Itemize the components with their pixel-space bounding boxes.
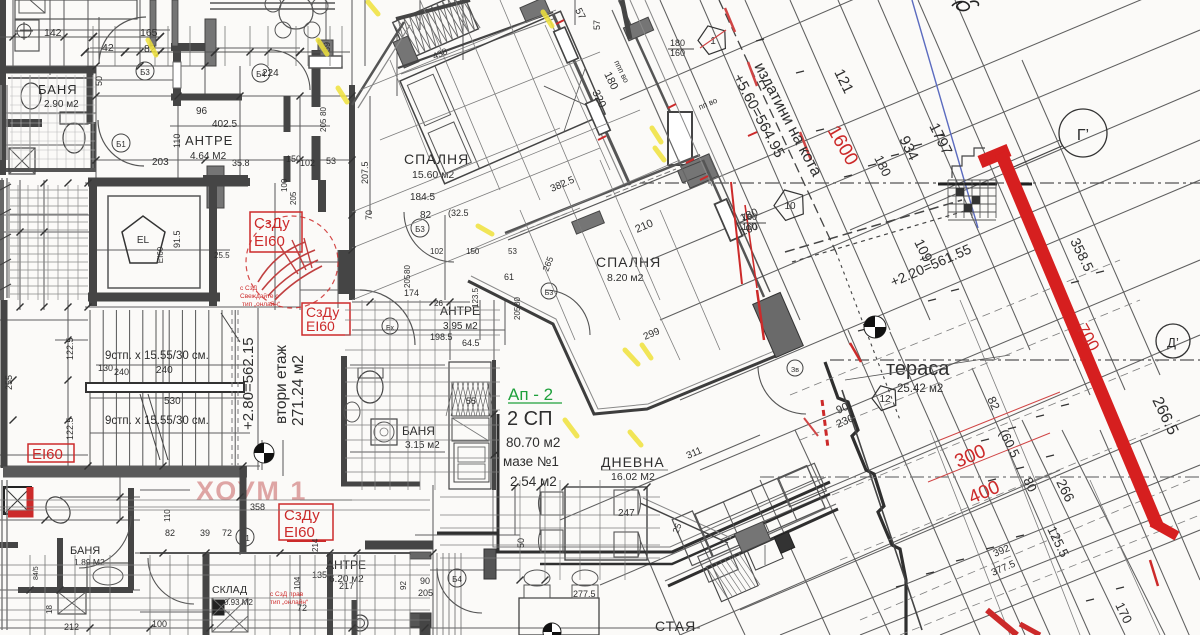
svg-text:с СзД прав: с СзД прав xyxy=(270,591,304,598)
svg-text:53: 53 xyxy=(326,156,336,166)
svg-text:198.5: 198.5 xyxy=(430,332,453,342)
svg-text:80: 80 xyxy=(513,297,522,306)
svg-text:150: 150 xyxy=(286,154,301,164)
svg-text:АНТРЕ: АНТРЕ xyxy=(185,133,233,148)
svg-text:Г’: Г’ xyxy=(1077,127,1089,144)
svg-text:80.70 м2: 80.70 м2 xyxy=(506,435,560,450)
svg-text:123.5: 123.5 xyxy=(471,287,480,308)
svg-text:18: 18 xyxy=(45,605,54,614)
svg-text:Зв: Зв xyxy=(791,367,799,374)
svg-text:EI60: EI60 xyxy=(156,246,165,263)
svg-text:207.5: 207.5 xyxy=(360,161,370,184)
svg-text:96: 96 xyxy=(196,106,208,117)
svg-text:104: 104 xyxy=(293,576,302,590)
svg-text:205: 205 xyxy=(403,274,412,288)
svg-text:82: 82 xyxy=(165,528,175,538)
svg-text:ДНЕВНА: ДНЕВНА xyxy=(601,454,665,470)
svg-text:ЕІ60: ЕІ60 xyxy=(32,446,63,463)
svg-text:92: 92 xyxy=(399,581,408,590)
svg-text:84/5: 84/5 xyxy=(33,566,40,580)
svg-text:50: 50 xyxy=(516,538,526,548)
svg-text:Б4: Б4 xyxy=(452,575,462,584)
svg-text:102: 102 xyxy=(430,247,444,256)
svg-text:271.24 м2: 271.24 м2 xyxy=(290,355,307,426)
svg-text:3.95 м2: 3.95 м2 xyxy=(443,321,478,332)
svg-text:122.5: 122.5 xyxy=(65,337,75,360)
svg-text:БАНЯ: БАНЯ xyxy=(402,424,435,438)
svg-text:2.90 м2: 2.90 м2 xyxy=(44,99,79,110)
svg-text:(32.5: (32.5 xyxy=(448,208,469,218)
svg-text:35.8: 35.8 xyxy=(232,158,250,168)
svg-text:8.20 м2: 8.20 м2 xyxy=(607,272,644,284)
svg-text:БАНЯ: БАНЯ xyxy=(70,545,100,557)
svg-text:100: 100 xyxy=(152,619,167,629)
svg-text:Свеждайте с: Свеждайте с xyxy=(240,292,279,300)
svg-text:402.5: 402.5 xyxy=(212,119,237,130)
svg-text:82: 82 xyxy=(420,210,432,221)
svg-text:Д’: Д’ xyxy=(1167,335,1179,350)
svg-text:Б3: Б3 xyxy=(415,225,425,234)
svg-text:25.5: 25.5 xyxy=(214,251,230,260)
svg-text:358: 358 xyxy=(250,502,265,512)
svg-text:150: 150 xyxy=(466,247,480,256)
svg-text:90: 90 xyxy=(420,576,430,586)
svg-text:СзДу: СзДу xyxy=(284,507,320,524)
svg-text:тип „онлайн“: тип „онлайн“ xyxy=(242,300,280,308)
svg-text:мазе №1: мазе №1 xyxy=(503,454,559,469)
svg-text:Б3: Б3 xyxy=(545,290,554,297)
svg-text:184.5: 184.5 xyxy=(410,192,435,203)
svg-text:64.5: 64.5 xyxy=(462,338,480,348)
svg-text:СПАЛНЯ: СПАЛНЯ xyxy=(404,151,469,167)
svg-text:80: 80 xyxy=(403,265,412,274)
svg-text:39: 39 xyxy=(200,528,210,538)
svg-text:255: 255 xyxy=(4,375,14,390)
svg-text:БАНЯ: БАНЯ xyxy=(38,82,78,97)
svg-text:247: 247 xyxy=(618,508,635,519)
svg-text:130: 130 xyxy=(98,363,113,373)
svg-text:2 СП: 2 СП xyxy=(507,408,553,430)
svg-text:EL: EL xyxy=(137,235,150,246)
svg-text:165: 165 xyxy=(140,27,158,39)
svg-text:EI60: EI60 xyxy=(306,318,335,334)
svg-text:12: 12 xyxy=(879,394,891,405)
svg-text:110: 110 xyxy=(172,134,182,148)
svg-text:9стп. х 15.55/30 см.: 9стп. х 15.55/30 см. xyxy=(105,415,209,427)
svg-text:1.89 М2: 1.89 М2 xyxy=(74,557,105,567)
svg-text:26: 26 xyxy=(434,299,443,308)
svg-text:61: 61 xyxy=(504,272,514,282)
svg-text:203: 203 xyxy=(152,157,169,168)
svg-text:9стп. х 15.55/30 см.: 9стп. х 15.55/30 см. xyxy=(105,350,209,362)
svg-text:Б1: Б1 xyxy=(116,140,126,149)
svg-text:ЕІ60: ЕІ60 xyxy=(284,524,315,541)
svg-text:100: 100 xyxy=(280,178,289,192)
svg-text:205: 205 xyxy=(418,588,433,598)
svg-text:втори етаж: втори етаж xyxy=(273,344,290,424)
svg-text:80: 80 xyxy=(319,107,328,116)
svg-text:102: 102 xyxy=(300,158,315,168)
svg-text:2.54 м2: 2.54 м2 xyxy=(510,474,557,489)
svg-text:240: 240 xyxy=(114,367,129,377)
svg-text:50: 50 xyxy=(94,76,104,86)
svg-text:6.20 м2: 6.20 м2 xyxy=(329,574,364,585)
svg-text:СКЛАД: СКЛАД xyxy=(212,584,247,596)
svg-text:530: 530 xyxy=(164,396,181,407)
svg-text:57: 57 xyxy=(592,20,602,30)
svg-text:с СзД: с СзД xyxy=(240,285,258,292)
svg-text:174: 174 xyxy=(404,288,419,298)
svg-text:180: 180 xyxy=(670,38,685,48)
svg-text:122.5: 122.5 xyxy=(65,417,75,440)
svg-text:+2.80=562.15: +2.80=562.15 xyxy=(240,337,257,430)
svg-text:72: 72 xyxy=(297,603,307,613)
svg-text:91.5: 91.5 xyxy=(172,230,182,248)
svg-text:214: 214 xyxy=(311,538,320,552)
svg-text:212: 212 xyxy=(64,622,79,632)
svg-text:55: 55 xyxy=(466,396,476,406)
svg-text:25.42 м2: 25.42 м2 xyxy=(897,383,943,395)
svg-text:205: 205 xyxy=(319,118,328,132)
svg-text:СПАЛНЯ: СПАЛНЯ xyxy=(596,254,661,270)
svg-text:16.02 М2: 16.02 М2 xyxy=(611,471,655,483)
svg-text:224: 224 xyxy=(262,68,279,79)
svg-text:Ап - 2: Ап - 2 xyxy=(508,385,553,404)
svg-text:240: 240 xyxy=(156,365,173,376)
svg-text:277.5: 277.5 xyxy=(573,589,596,599)
svg-text:СТАЯ: СТАЯ xyxy=(655,618,696,634)
svg-text:53: 53 xyxy=(508,247,517,256)
svg-text:110: 110 xyxy=(163,509,172,522)
svg-text:70: 70 xyxy=(364,210,374,220)
svg-text:10: 10 xyxy=(784,201,796,212)
svg-text:205: 205 xyxy=(513,306,522,320)
svg-text:205: 205 xyxy=(289,191,298,205)
svg-text:Б3: Б3 xyxy=(140,68,150,77)
svg-text:42: 42 xyxy=(102,42,114,54)
svg-text:72: 72 xyxy=(222,528,232,538)
svg-text:142: 142 xyxy=(44,27,62,39)
svg-text:0.93 М2: 0.93 М2 xyxy=(224,598,253,607)
